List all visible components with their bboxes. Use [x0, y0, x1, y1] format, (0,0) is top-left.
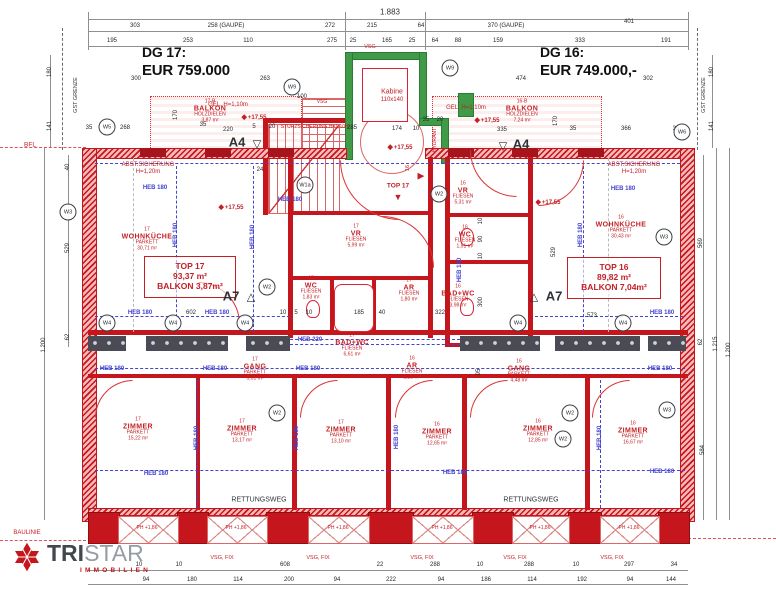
- room-label: 17ZIMMERPARKETT15,22 m²: [123, 418, 153, 443]
- dimension-label: 215: [367, 23, 377, 29]
- dimension-label: 220: [223, 127, 233, 133]
- dimension-label: 94: [334, 577, 341, 583]
- beam-label: HEB 180: [203, 366, 227, 372]
- dimension-label: 268: [120, 125, 130, 131]
- dimension-label: 195: [107, 38, 117, 44]
- dimension-label: 180: [47, 67, 53, 77]
- dimension-label: 22: [377, 562, 384, 568]
- room-ar: 5,31 m²: [455, 201, 472, 207]
- beam-label: HEB 180: [205, 310, 229, 316]
- wall-marker-circle: W4: [510, 315, 527, 332]
- dimension-label: 573: [587, 313, 597, 319]
- plan-label: BAULINIE: [13, 530, 40, 536]
- dimension-label: 62: [65, 334, 71, 341]
- dimension-label: 10: [176, 562, 183, 568]
- dimension-label: 25: [350, 38, 357, 44]
- room-ar: 1,51 m²: [457, 245, 474, 251]
- plan-label: VSG, FIX: [600, 555, 623, 561]
- elevation-marker: ◆+17,55: [388, 143, 413, 151]
- dimension-label: 94: [627, 577, 634, 583]
- dimension-label: 165: [382, 38, 392, 44]
- dimension-label: 474: [516, 76, 526, 82]
- plan-label: VSG, FIX: [503, 555, 526, 561]
- dimension-label: 10: [477, 562, 484, 568]
- elevation-diamond-icon: ◆: [475, 117, 480, 124]
- room-ar: 15,22 m²: [128, 437, 148, 443]
- dimension-label: 170: [553, 116, 559, 126]
- dimension-label: 62: [698, 339, 704, 346]
- beam-label: HEB 220: [298, 337, 322, 343]
- plan-label: △: [530, 291, 538, 304]
- dimension-label: 258 (GAUPE): [208, 23, 245, 29]
- beam-label: HEB 180: [648, 366, 672, 372]
- plan-label: H=1,20m: [622, 169, 647, 175]
- dimension-label: 20: [269, 124, 276, 130]
- dimension-label: 10: [136, 562, 143, 568]
- dimension-label: 602: [186, 310, 196, 316]
- room-ar: 1,80 m²: [401, 298, 418, 304]
- wall-marker-circle: W4: [165, 315, 182, 332]
- beam-label: HEB 180: [250, 225, 256, 249]
- room-label: 16-BBALKONHOLZDIELEN7,24 m²: [506, 100, 538, 125]
- wall-marker-circle: W2: [562, 405, 579, 422]
- dimension-label: 608: [280, 562, 290, 568]
- dimension-label: 170: [173, 110, 179, 120]
- dimension-label: 569: [698, 238, 704, 248]
- room-ar: 16,67 m²: [623, 441, 643, 447]
- room-ar: 3,98 m²: [450, 304, 467, 310]
- elevation-marker: ◆+17,55: [219, 203, 244, 211]
- wall-marker-circle: W2: [555, 431, 572, 448]
- dimension-label: 529: [551, 247, 557, 257]
- dimension-label: 5: [252, 124, 255, 130]
- dimension-label: 263: [260, 76, 270, 82]
- room-ar: 12,85 m²: [528, 439, 548, 445]
- room-ar: 7,24 m²: [514, 119, 531, 125]
- beam-label: HEB 180: [278, 197, 302, 203]
- dimension-label: 366: [621, 126, 631, 132]
- dimension-label: 272: [325, 23, 335, 29]
- dimension-label: 275: [327, 38, 337, 44]
- elevation-diamond-icon: ◆: [219, 204, 224, 211]
- dimension-label: 300: [131, 76, 141, 82]
- dimension-label: 159: [493, 38, 503, 44]
- elevation-diamond-icon: ◆: [388, 144, 393, 151]
- room-ar: 4,48 m²: [511, 379, 528, 385]
- dimension-label: 144: [666, 577, 676, 583]
- wall-marker-circle: W4: [99, 315, 116, 332]
- plan-label: PH +1,86: [226, 525, 247, 531]
- dimension-label: 303: [130, 23, 140, 29]
- dimension-label: 35: [86, 125, 93, 131]
- floorplan-canvas: DG 17: EUR 759.000 DG 16: EUR 749.000,- …: [0, 0, 776, 600]
- plan-label: PH +1,86: [432, 525, 453, 531]
- plan-label: HYDRANT: [432, 128, 438, 152]
- room-ar: 30,71 m²: [137, 247, 157, 253]
- beam-label: HEB 180: [296, 366, 320, 372]
- room-label: 16WCFLIESEN1,51 m²: [455, 226, 476, 251]
- beam-label: HEB 180: [650, 469, 674, 475]
- dimension-label: 1.200: [726, 342, 732, 357]
- dimension-label: 64: [432, 38, 439, 44]
- wall-marker-circle: W6: [674, 124, 691, 141]
- dimension-label: 333: [575, 38, 585, 44]
- dimension-label: 34: [671, 562, 678, 568]
- dimension-label: 174: [392, 126, 402, 132]
- room-label: 16ZIMMERPARKETT12,85 m²: [523, 420, 553, 445]
- beam-label: HEB 180: [443, 470, 467, 476]
- plan-label: ABST.SICHERUNG: [608, 162, 661, 168]
- wall-marker-circle: W1a: [297, 177, 314, 194]
- dimension-label: 5: [294, 310, 297, 316]
- room-ar: 13,17 m²: [232, 439, 252, 445]
- elevation-diamond-icon: ◆: [536, 199, 541, 206]
- dimension-label: 185: [354, 310, 364, 316]
- dimension-label: 40: [379, 310, 386, 316]
- dimension-label: 191: [661, 38, 671, 44]
- dimension-label: 1.215: [713, 336, 719, 351]
- room-ar: 3,87 m²: [202, 119, 219, 125]
- beam-label: HEB 180: [194, 426, 200, 450]
- room-label: 16BAD+WCFLIESEN3,98 m²: [441, 285, 474, 310]
- wall-marker-circle: W4: [237, 315, 254, 332]
- plan-label: RETTUNGSWEG: [231, 497, 286, 504]
- wall-marker-circle: W3: [659, 402, 676, 419]
- dimension-label: 529: [65, 243, 71, 253]
- plan-label: GST GRENZE: [701, 77, 707, 113]
- dimension-label: 88: [455, 38, 462, 44]
- dimension-label: 300: [478, 297, 484, 307]
- dimension-label: 24: [257, 167, 264, 173]
- plan-label: A7: [223, 289, 240, 304]
- elevation-marker: ◆+17,55: [475, 116, 500, 124]
- dimension-label: 95: [476, 369, 482, 376]
- dimension-label: 322: [435, 310, 445, 316]
- beam-label: HEB 180: [597, 426, 603, 450]
- plan-label: GST GRENZE: [73, 77, 79, 113]
- room-label: 17WCFLIESEN1,83 m²: [301, 277, 322, 302]
- plan-label: △: [247, 291, 255, 304]
- dimension-label: 192: [577, 577, 587, 583]
- beam-label: HEB 180: [173, 223, 179, 247]
- wall-marker-circle: W3: [656, 229, 673, 246]
- dimension-label: 10: [280, 310, 287, 316]
- plan-label: H=1,20m: [136, 169, 161, 175]
- plan-label: RETTUNGSWEG: [503, 497, 558, 504]
- plan-label: A7: [546, 289, 563, 304]
- room-label: 16ZIMMERPARKETT16,67 m²: [618, 422, 648, 447]
- room-label: 17ARFLIESEN1,80 m²: [399, 279, 420, 304]
- plan-label: Kabine: [381, 89, 403, 96]
- room-ar: 12,65 m²: [427, 442, 447, 448]
- room-ar: 5,01 m²: [247, 377, 264, 383]
- wall-marker-circle: W9: [284, 79, 301, 96]
- room-ar: 5,99 m²: [348, 244, 365, 250]
- room-label: 16ZIMMERPARKETT12,65 m²: [422, 423, 452, 448]
- plan-label: TOP 17: [387, 183, 409, 190]
- wall-marker-circle: W2: [269, 405, 286, 422]
- wall-marker-circle: W2: [431, 186, 448, 203]
- dimension-label: 288: [430, 562, 440, 568]
- dimension-label: 288: [524, 562, 534, 568]
- room-label: 17-BBALKONHOLZDIELEN3,87 m²: [194, 100, 226, 125]
- elevation-diamond-icon: ◆: [242, 114, 247, 121]
- dimension-label: 1.200: [41, 337, 47, 352]
- room-label: 17ZIMMERPARKETT13,10 m²: [326, 421, 356, 446]
- plan-label: STURZSICHERUNG H=1,10m: [281, 124, 349, 130]
- dimension-label: 180: [187, 577, 197, 583]
- plan-label: PH +1,86: [530, 525, 551, 531]
- room-label: 16ARFLIESEN2,28 m²: [402, 357, 423, 382]
- plan-label: ▶: [418, 171, 425, 182]
- plan-label: 1.883: [380, 8, 400, 17]
- beam-label: HEB 180: [128, 310, 152, 316]
- dimension-label: 100: [297, 94, 307, 100]
- wall-marker-circle: W2: [259, 279, 276, 296]
- plan-label: VSG, FIX: [210, 555, 233, 561]
- beam-label: HEB 180: [394, 425, 400, 449]
- dimension-label: 10: [478, 253, 484, 260]
- dimension-label: 64: [418, 23, 425, 29]
- dimension-label: 94: [143, 577, 150, 583]
- wall-marker-circle: W3: [60, 204, 77, 221]
- plan-label: ▽: [499, 140, 507, 153]
- plan-label: VSG: [317, 99, 328, 105]
- plan-label: 16: [405, 165, 411, 171]
- elevation-marker: ◆+17,55: [242, 113, 267, 121]
- dimension-label: 302: [643, 76, 653, 82]
- room-label: 17VRFLIESEN5,99 m²: [346, 225, 367, 250]
- dimension-label: 370 (GAUPE): [488, 23, 525, 29]
- wall-marker-circle: W5: [99, 119, 116, 136]
- dimension-label: 297: [624, 562, 634, 568]
- dimension-label: 25: [409, 38, 416, 44]
- dimension-label: 110: [243, 38, 253, 44]
- beam-label: HEB 180: [578, 223, 584, 247]
- dimension-label: 10: [413, 126, 420, 132]
- plan-label: VSG, FIX: [410, 555, 433, 561]
- plan-label: 110x140: [381, 97, 404, 103]
- plan-label: BFL: [24, 142, 36, 149]
- elevation-marker: ◆+17,55: [536, 198, 561, 206]
- plan-label: PH +1,86: [328, 525, 349, 531]
- wall-marker-circle: W4: [615, 315, 632, 332]
- dimension-label: 114: [527, 577, 537, 583]
- room-label: 17ZIMMERPARKETT13,17 m²: [227, 420, 257, 445]
- dimension-label: 335: [497, 127, 507, 133]
- room-ar: 6,61 m²: [344, 353, 361, 359]
- wall-marker-circle: W9: [442, 60, 459, 77]
- beam-label: HEB 180: [144, 471, 168, 477]
- room-ar: 13,10 m²: [331, 440, 351, 446]
- dimension-label: 401: [624, 19, 634, 25]
- dimension-label: 114: [233, 577, 243, 583]
- dimension-label: 584: [700, 445, 706, 455]
- room-ar: 2,28 m²: [404, 376, 421, 382]
- beam-label: HEB 180: [650, 310, 674, 316]
- room-label: 17WOHNKÜCHEPARKETT30,71 m²: [122, 228, 173, 253]
- room-ar: 1,83 m²: [303, 296, 320, 302]
- room-label: 17BAD+WCFLIESEN6,61 m²: [335, 334, 368, 359]
- dimension-label: 10: [478, 218, 484, 225]
- dimension-label: 180: [709, 67, 715, 77]
- dimension-label: 20: [437, 117, 444, 123]
- dimension-label: 94: [438, 577, 445, 583]
- plan-label: PH +1,86: [137, 525, 158, 531]
- plan-label: A4: [513, 137, 530, 152]
- dimension-label: 35: [423, 117, 430, 123]
- room-label: 16WOHNKÜCHEPARKETT30,43 m²: [596, 216, 647, 241]
- plan-label: A4: [229, 135, 246, 150]
- beam-label: HEB 180: [611, 186, 635, 192]
- dimension-label: 10: [573, 562, 580, 568]
- dimension-label: 222: [386, 577, 396, 583]
- dimension-label: 253: [183, 38, 193, 44]
- dimension-label: 186: [481, 577, 491, 583]
- room-label: 16GANGPARKETT4,48 m²: [508, 360, 531, 385]
- plan-label: ▼: [394, 192, 403, 202]
- dimension-label: 141: [47, 121, 53, 131]
- plan-label: GEL. H=1,10m: [446, 105, 486, 111]
- dimension-label: 40: [65, 164, 71, 171]
- dimension-label: 141: [709, 121, 715, 131]
- dimension-label: 200: [284, 577, 294, 583]
- beam-label: HEB 180: [294, 426, 300, 450]
- beam-label: HEB 180: [143, 185, 167, 191]
- dimension-label: 90: [478, 236, 484, 243]
- annotation-layer: 303258 (GAUPE)27221564370 (GAUPE)4011952…: [0, 0, 776, 600]
- plan-label: ▽: [253, 138, 261, 151]
- beam-label: HEB 180: [457, 258, 463, 282]
- dimension-label: 35: [570, 126, 577, 132]
- room-ar: 30,43 m²: [611, 235, 631, 241]
- plan-label: ABST.SICHERUNG: [122, 162, 175, 168]
- beam-label: HEB 180: [100, 366, 124, 372]
- plan-label: VSG: [364, 44, 376, 50]
- room-label: 17GANGPARKETT5,01 m²: [244, 358, 267, 383]
- plan-label: VSG, FIX: [306, 555, 329, 561]
- dimension-label: 10: [306, 310, 313, 316]
- plan-label: PH +1,86: [619, 525, 640, 531]
- room-label: 16VRFLIESEN5,31 m²: [453, 182, 474, 207]
